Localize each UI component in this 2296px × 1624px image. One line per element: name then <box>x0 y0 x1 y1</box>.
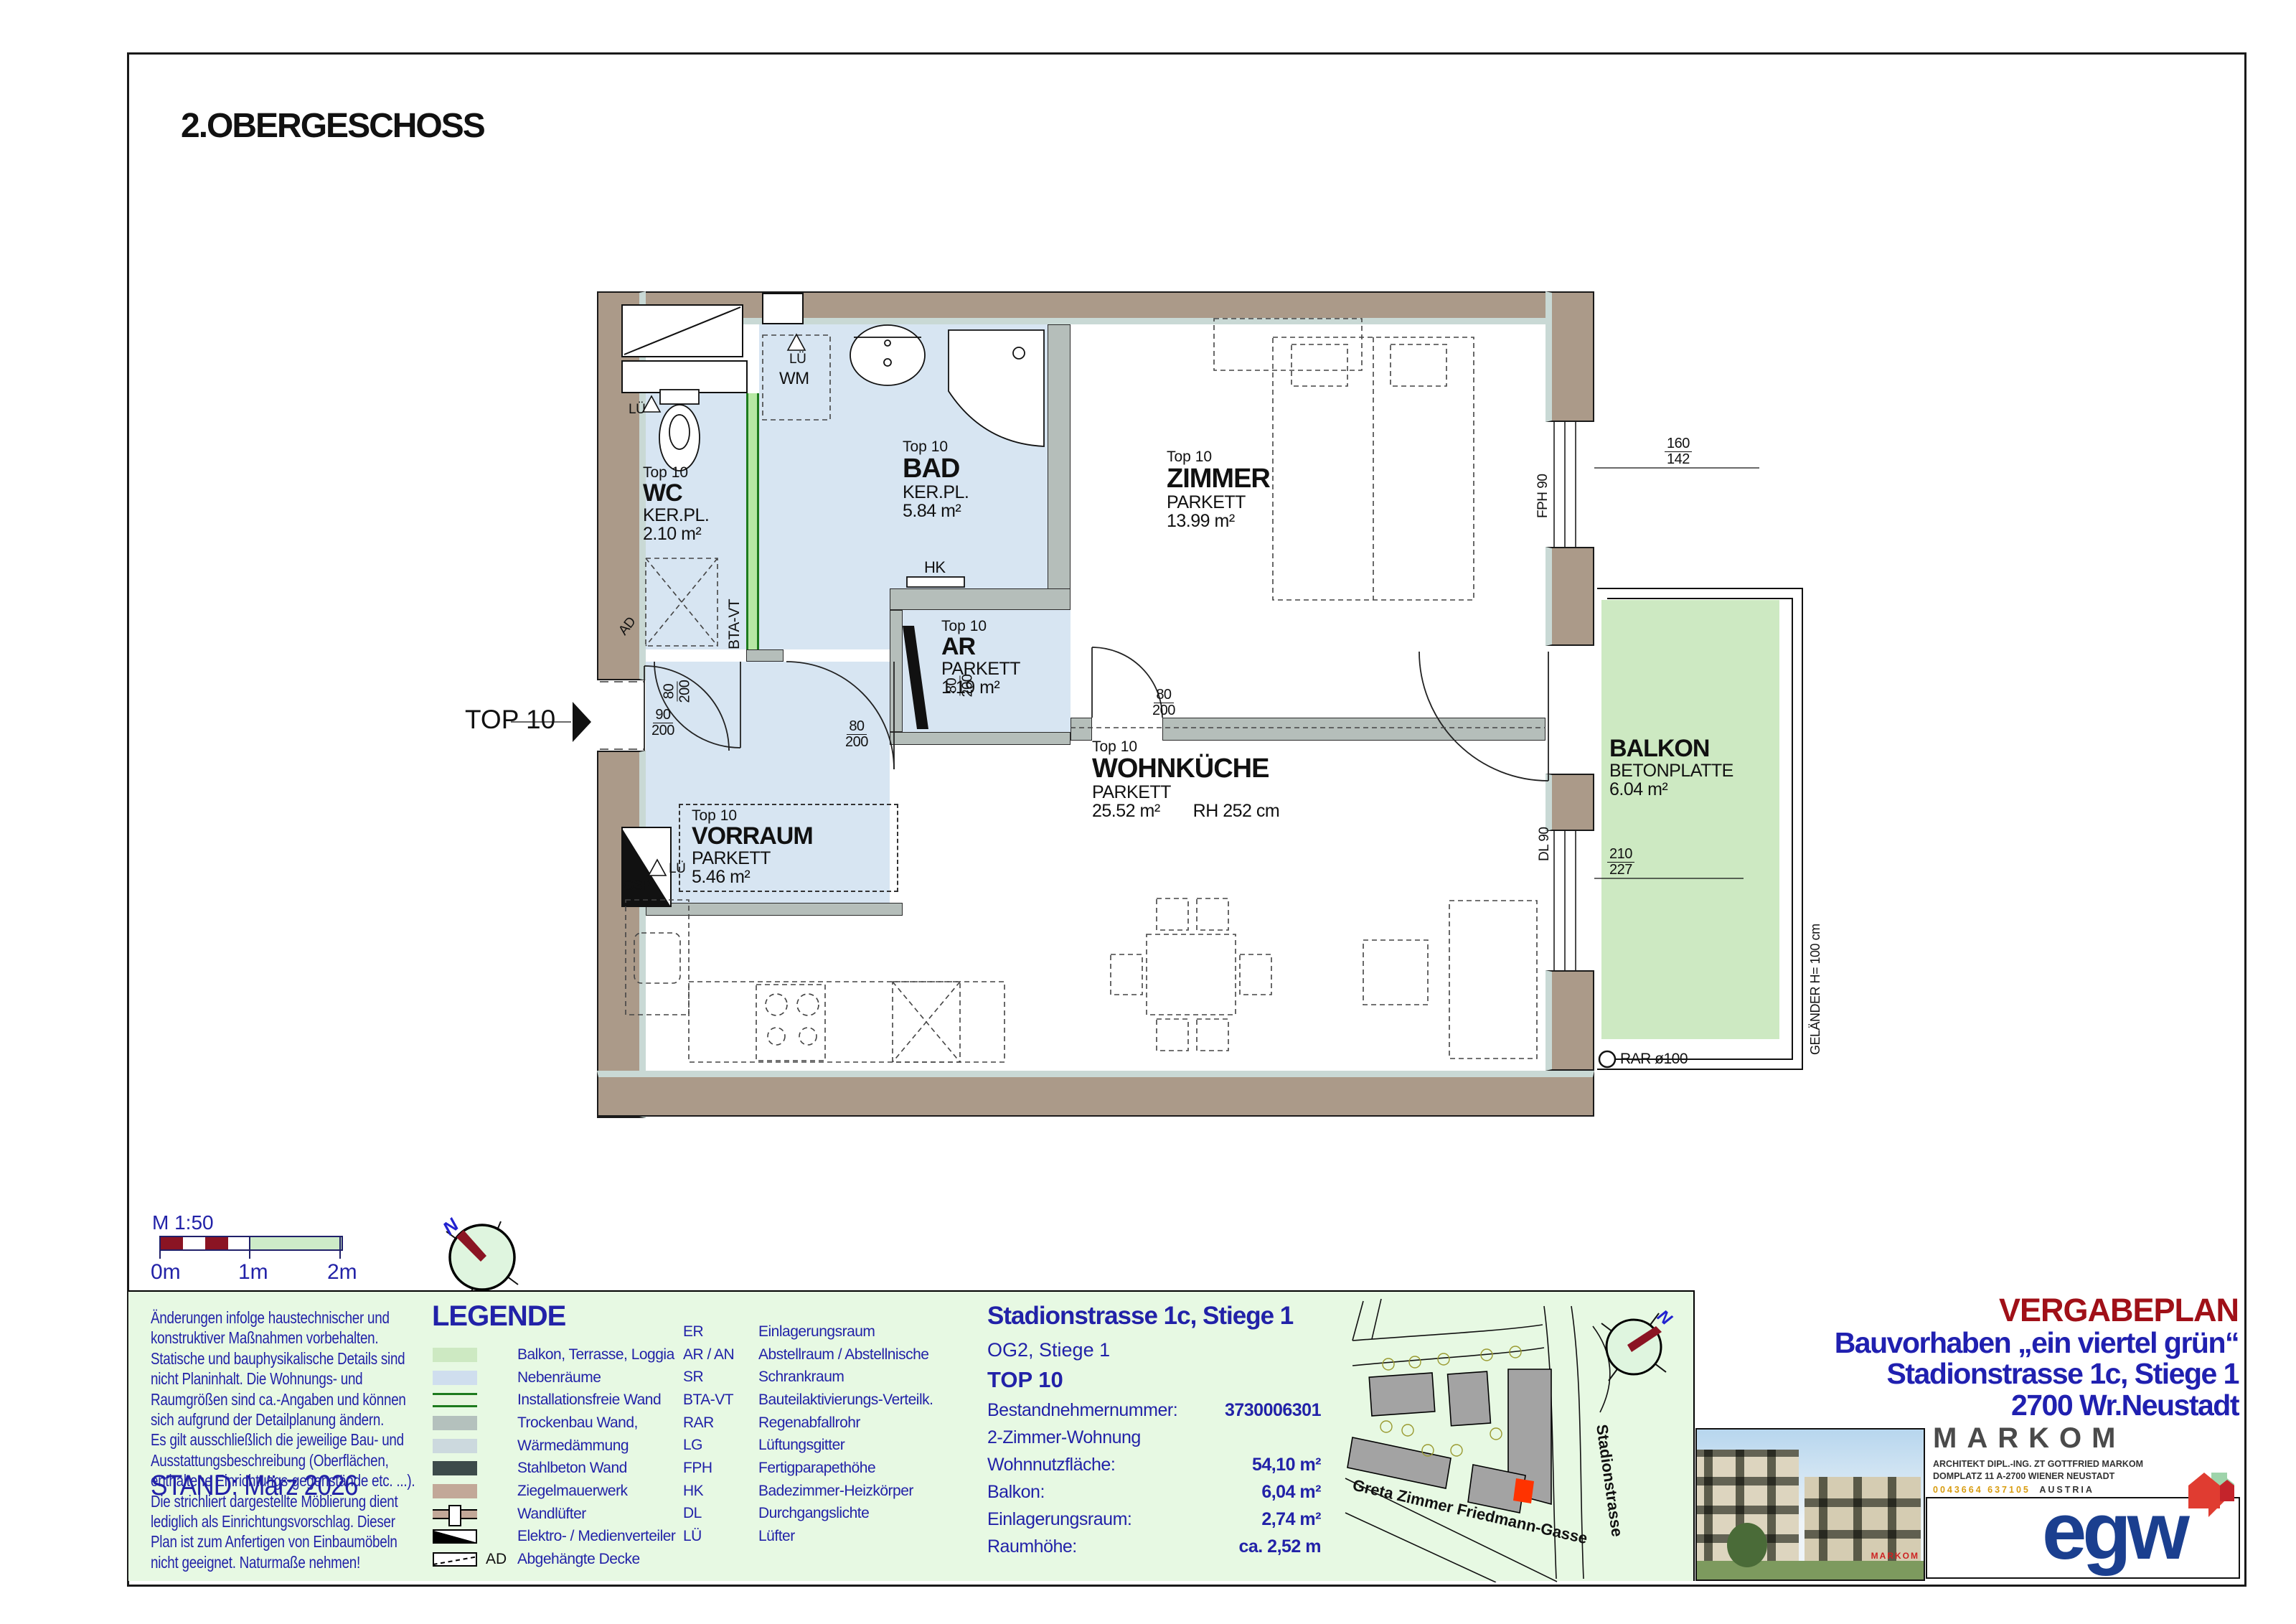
room-label-bad: Top 10 BAD KER.PL. 5.84 m² <box>903 439 969 520</box>
legend-item: Nebenräume <box>433 1366 675 1389</box>
legend-item: Installationsfreie Wand <box>433 1389 675 1412</box>
ar-door-leaf <box>903 626 928 729</box>
legend-abbr: DLDurchgangslichte <box>683 1503 933 1526</box>
balcony-swatch <box>433 1348 477 1362</box>
info-top: TOP 10 <box>987 1367 1321 1393</box>
legend-item: Trockenbau Wand, <box>433 1412 675 1435</box>
legend-item: Stahlbeton Wand <box>433 1457 675 1480</box>
project-address: Stadionstrasse 1c, Stiege 1 <box>1708 1358 2239 1389</box>
room-height-note: RH 252 cm <box>1193 802 1280 820</box>
dim-wc-door: 80200 <box>662 680 692 703</box>
photo-tree <box>1727 1523 1767 1567</box>
windows <box>1554 422 1576 970</box>
markom-line1: ARCHITEKT DIPL.-ING. ZT GOTTFRIED MARKOM <box>1933 1459 2234 1469</box>
furniture-dashed <box>626 319 1545 1062</box>
project-name: Bauvorhaben „ein viertel grün“ <box>1708 1328 2239 1358</box>
map-north-compass: N <box>1601 1306 1676 1381</box>
egw-house-icon <box>2180 1470 2244 1527</box>
legend-item: Wärmedämmung <box>433 1435 675 1458</box>
balcony-railing <box>1597 588 1802 1069</box>
legend-item: Elektro- / Medienverteiler <box>433 1526 675 1549</box>
unit-marker <box>1513 1478 1534 1503</box>
scale-tick-0 <box>159 1236 161 1259</box>
dim-balcony-window: 210227 <box>1607 847 1634 878</box>
fph-label: FPH 90 <box>1535 474 1551 518</box>
legend-item: Ziegelmauerwerk <box>433 1480 675 1503</box>
btavt-label: BTA-VT <box>726 599 743 649</box>
legend-item: Wandlüfter <box>433 1503 675 1526</box>
scale-seg <box>183 1237 205 1249</box>
scale-1m: 1m <box>238 1260 268 1285</box>
scale-seg <box>161 1237 183 1249</box>
street-label-stadionstrasse: Stadionstrasse <box>1593 1423 1627 1538</box>
room-label-balkon: BALKON BETONPLATTE 6.04 m² <box>1609 736 1733 799</box>
building-photo: MARKOM <box>1695 1428 1925 1581</box>
dim-entry-door: 90200 <box>651 708 674 738</box>
legend-abbr: FPHFertigparapethöhe <box>683 1457 933 1480</box>
electro-triangle <box>623 830 670 906</box>
room-label-wohnkueche: Top 10 WOHNKÜCHE PARKETT 25.52 m² RH 252… <box>1092 739 1279 820</box>
photo-ground <box>1697 1561 1925 1580</box>
scale-0m: 0m <box>151 1260 181 1285</box>
project-city: 2700 Wr.Neustadt <box>1708 1390 2239 1421</box>
rar-pipe <box>1599 1051 1615 1067</box>
hk-label: HK <box>924 558 946 577</box>
gsp-label: GSP <box>624 878 651 894</box>
nebenraeume-swatch <box>433 1371 477 1385</box>
scale-seg <box>205 1237 228 1249</box>
info-title: Stadionstrasse 1c, Stiege 1 <box>987 1302 1321 1330</box>
stahlbeton-swatch <box>433 1461 477 1475</box>
scale-bar <box>159 1236 343 1251</box>
info-row: Einlagerungsraum:2,74 m² <box>987 1509 1321 1536</box>
scale-2m: 2m <box>327 1260 357 1285</box>
legend-abbr: RARRegenabfallrohr <box>683 1412 933 1435</box>
room-label-wc: Top 10 WC KER.PL. 2.10 m² <box>643 465 709 543</box>
room-label-zimmer: Top 10 ZIMMER PARKETT 13.99 m² <box>1167 449 1270 530</box>
abgehaengte-decke-icon <box>433 1552 477 1567</box>
legend-abbr: LÜLüfter <box>683 1525 933 1548</box>
legend-item: ADAbgehängte Decke <box>433 1548 675 1571</box>
north-letter: N <box>1653 1306 1675 1329</box>
legend-item: Balkon, Terrasse, Loggia <box>433 1343 675 1366</box>
stand-date: STAND: März 2026 <box>151 1470 357 1502</box>
lue-label-bad: LÜ <box>789 352 806 367</box>
trockenbau-swatch <box>433 1416 477 1430</box>
installationsfreie-wand-swatch <box>433 1393 477 1407</box>
lue-label-wc: LÜ <box>629 402 645 418</box>
legend-swatch-column: Balkon, Terrasse, Loggia Nebenräume Inst… <box>433 1343 675 1571</box>
plan-type: VERGABEPLAN <box>1708 1293 2239 1328</box>
entry-arrow-icon <box>573 702 591 742</box>
bath-fixtures <box>659 325 1044 587</box>
legend-abbr: SRSchrankraum <box>683 1366 933 1389</box>
scale-seg <box>250 1237 342 1249</box>
legend-title: LEGENDE <box>432 1300 565 1333</box>
info-row: 2-Zimmer-Wohnung <box>987 1427 1321 1455</box>
scale-seg <box>228 1237 250 1249</box>
north-compass: N <box>439 1216 525 1296</box>
apartment-info: Stadionstrasse 1c, Stiege 1 OG2, Stiege … <box>987 1302 1321 1564</box>
legend-abbr: AR / ANAbstellraum / Abstellnische <box>683 1343 933 1366</box>
info-row: Wohnnutzfläche:54,10 m² <box>987 1455 1321 1482</box>
wandluefter-icon <box>433 1509 477 1519</box>
legend-abbr: LGLüftungsgitter <box>683 1434 933 1457</box>
photo-watermark: MARKOM <box>1871 1551 1919 1561</box>
legend-abbr: BTA-VTBauteilaktivierungs-Verteilk. <box>683 1389 933 1412</box>
site-map: Greta Zimmer Friedmann-Gasse Stadionstra… <box>1342 1297 1695 1582</box>
entry-threshold <box>600 682 644 749</box>
wm-label: WM <box>779 369 809 389</box>
legend-abbr: HKBadezimmer-Heizkörper <box>683 1480 933 1503</box>
entry-label: TOP 10 <box>465 705 555 735</box>
egw-logo-text: egw <box>2042 1491 2186 1572</box>
info-row: Balkon:6,04 m² <box>987 1482 1321 1509</box>
markom-phone: 0043664 637105 <box>1933 1485 2031 1495</box>
ad-tag: AD <box>486 1551 510 1568</box>
waermedaemmung-swatch <box>433 1439 477 1453</box>
info-row: Raumhöhe:ca. 2,52 m <box>987 1536 1321 1564</box>
info-row: Bestandnehmernummer:3730006301 <box>987 1400 1321 1427</box>
rar-label: RAR ø100 <box>1620 1051 1688 1068</box>
titleblock: VERGABEPLAN Bauvorhaben „ein viertel grü… <box>1708 1293 2239 1421</box>
dim-zimmer-door: 80200 <box>1152 687 1175 718</box>
scale-tick-1 <box>249 1236 250 1259</box>
dim-zimmer-window: 160142 <box>1665 436 1692 467</box>
scale-label: M 1:50 <box>152 1211 214 1234</box>
lue-label-kitchen: LÜ <box>669 861 685 877</box>
dim-bad-door: 80200 <box>845 719 868 750</box>
dl-label: DL 90 <box>1537 827 1553 862</box>
gelaender-label: GELÄNDER H= 100 cm <box>1808 924 1823 1055</box>
ziegel-swatch <box>433 1484 477 1498</box>
disclaimer-text: Änderungen infolge haustechnischer und k… <box>151 1308 472 1572</box>
legend-abbr: EREinlagerungsraum <box>683 1320 933 1343</box>
shaft-diagonal <box>624 307 740 355</box>
scale-tick-2 <box>339 1236 341 1259</box>
legend-abbr-column: EREinlagerungsraum AR / ANAbstellraum / … <box>683 1320 933 1548</box>
elektro-verteiler-icon <box>433 1529 477 1544</box>
dim-ar-door: 80200 <box>944 675 975 698</box>
markom-logo: MARKOM <box>1933 1422 2234 1455</box>
info-sub: OG2, Stiege 1 <box>987 1339 1321 1361</box>
room-label-vorraum: Top 10 VORRAUM PARKETT 5.46 m² <box>679 804 898 892</box>
